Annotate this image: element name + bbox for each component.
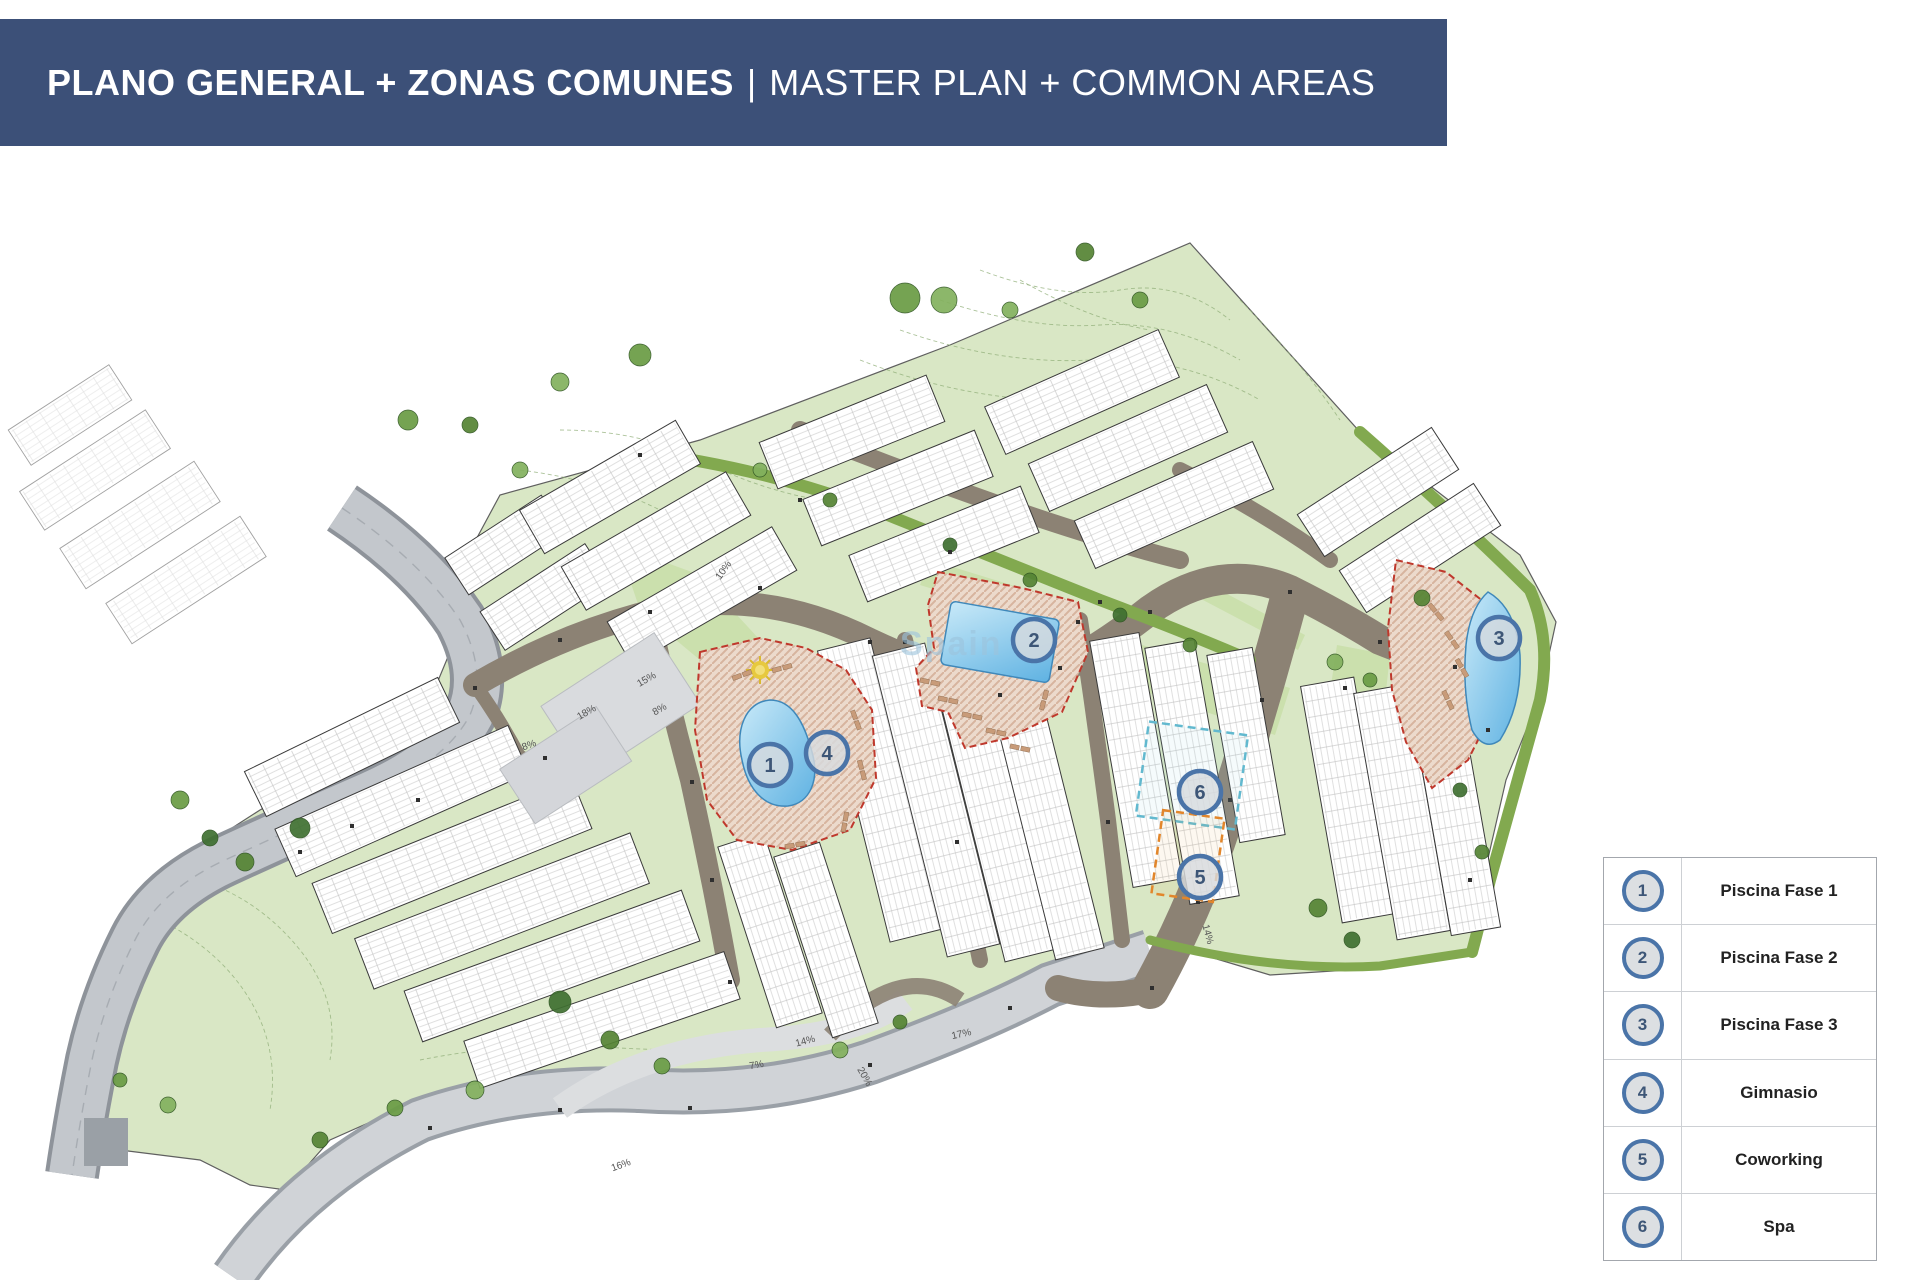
legend-row-piscina-fase-3: 3 Piscina Fase 3	[1604, 992, 1876, 1059]
street-light-dot	[688, 1106, 692, 1110]
street-light-dot	[1148, 610, 1152, 614]
tree	[832, 1042, 848, 1058]
legend-label: Coworking	[1682, 1127, 1876, 1193]
tree	[823, 493, 837, 507]
tree	[202, 830, 218, 846]
tree	[113, 1073, 127, 1087]
tree	[1076, 243, 1094, 261]
tree	[1414, 590, 1430, 606]
tree	[462, 417, 478, 433]
legend-label: Gimnasio	[1682, 1060, 1876, 1126]
tree	[1113, 608, 1127, 622]
tree	[398, 410, 418, 430]
legend-number-cell: 6	[1604, 1194, 1682, 1260]
legend-row-gimnasio: 4 Gimnasio	[1604, 1060, 1876, 1127]
street-light-dot	[710, 878, 714, 882]
legend-number-cell: 1	[1604, 858, 1682, 924]
street-light-dot	[1076, 620, 1080, 624]
legend-row-piscina-fase-2: 2 Piscina Fase 2	[1604, 925, 1876, 992]
legend-number-cell: 3	[1604, 992, 1682, 1058]
tree	[943, 538, 957, 552]
legend-label: Piscina Fase 1	[1682, 858, 1876, 924]
marker-piscina-fase-1: 1	[749, 744, 791, 786]
tree	[890, 283, 920, 313]
tree	[1344, 932, 1360, 948]
legend-number-cell: 2	[1604, 925, 1682, 991]
tree	[1002, 302, 1018, 318]
street-light-dot	[798, 498, 802, 502]
street-light-dot	[948, 550, 952, 554]
tree	[236, 853, 254, 871]
legend-row-spa: 6 Spa	[1604, 1194, 1876, 1260]
svg-text:3: 3	[1493, 628, 1504, 650]
legend-table: 1 Piscina Fase 1 2 Piscina Fase 2 3 Pisc…	[1603, 857, 1877, 1261]
legend-label: Piscina Fase 3	[1682, 992, 1876, 1058]
legend-row-coworking: 5 Coworking	[1604, 1127, 1876, 1194]
tree	[1309, 899, 1327, 917]
street-light-dot	[1058, 666, 1062, 670]
street-light-dot	[648, 610, 652, 614]
legend-circle-2: 2	[1622, 937, 1664, 979]
street-light-dot	[416, 798, 420, 802]
svg-text:1: 1	[764, 755, 775, 777]
svg-text:6: 6	[1194, 782, 1205, 804]
marker-gimnasio: 4	[806, 732, 848, 774]
street-light-dot	[690, 780, 694, 784]
street-light-dot	[1150, 986, 1154, 990]
tree	[171, 791, 189, 809]
legend-label: Spa	[1682, 1194, 1876, 1260]
tree	[1023, 573, 1037, 587]
tree	[312, 1132, 328, 1148]
street-light-dot	[998, 693, 1002, 697]
page-title-en: MASTER PLAN + COMMON AREAS	[769, 62, 1375, 104]
tree	[931, 287, 957, 313]
street-light-dot	[558, 1108, 562, 1112]
marker-piscina-fase-2: 2	[1013, 619, 1055, 661]
title-separator: |	[747, 62, 756, 104]
street-light-dot	[1288, 590, 1292, 594]
street-light-dot	[1468, 878, 1472, 882]
tree	[290, 818, 310, 838]
svg-text:2: 2	[1028, 630, 1039, 652]
tree	[893, 1015, 907, 1029]
legend-row-piscina-fase-1: 1 Piscina Fase 1	[1604, 858, 1876, 925]
tree	[1363, 673, 1377, 687]
tree	[1132, 292, 1148, 308]
tree	[387, 1100, 403, 1116]
tree	[160, 1097, 176, 1113]
legend-number-cell: 5	[1604, 1127, 1682, 1193]
street-light-dot	[1008, 1006, 1012, 1010]
legend-circle-4: 4	[1622, 1072, 1664, 1114]
tree	[1183, 638, 1197, 652]
watermark: Spain	[900, 625, 1003, 663]
tree	[753, 463, 767, 477]
legend-label: Piscina Fase 2	[1682, 925, 1876, 991]
page: 10%15%8%18%8%14%7%17%20%14%16% Spain 1 2…	[0, 0, 1920, 1280]
street-light-dot	[473, 686, 477, 690]
street-light-dot	[1343, 686, 1347, 690]
street-light-dot	[1378, 640, 1382, 644]
street-light-dot	[868, 640, 872, 644]
street-light-dot	[350, 824, 354, 828]
tree	[654, 1058, 670, 1074]
svg-text:4: 4	[821, 743, 833, 765]
tree	[1327, 654, 1343, 670]
tree	[512, 462, 528, 478]
marker-piscina-fase-3: 3	[1478, 617, 1520, 659]
street-light-dot	[728, 980, 732, 984]
tree	[629, 344, 651, 366]
legend-circle-6: 6	[1622, 1206, 1664, 1248]
marker-coworking: 5	[1179, 856, 1221, 898]
street-light-dot	[1106, 820, 1110, 824]
street-light-dot	[1486, 728, 1490, 732]
legend-circle-5: 5	[1622, 1139, 1664, 1181]
street-light-dot	[1453, 665, 1457, 669]
tree	[551, 373, 569, 391]
street-light-dot	[543, 756, 547, 760]
tree	[1453, 783, 1467, 797]
street-light-dot	[868, 1063, 872, 1067]
context-buildings	[8, 365, 266, 644]
street-light-dot	[1260, 698, 1264, 702]
tree	[466, 1081, 484, 1099]
street-light-dot	[298, 850, 302, 854]
svg-text:5: 5	[1194, 867, 1205, 889]
street-light-dot	[955, 840, 959, 844]
street-light-dot	[1098, 600, 1102, 604]
legend-number-cell: 4	[1604, 1060, 1682, 1126]
marker-spa: 6	[1179, 771, 1221, 813]
road-spur	[84, 1118, 128, 1166]
tree	[549, 991, 571, 1013]
legend-circle-1: 1	[1622, 870, 1664, 912]
slope-label: 16%	[610, 1157, 633, 1174]
page-title-es: PLANO GENERAL + ZONAS COMUNES	[47, 62, 734, 104]
legend-circle-3: 3	[1622, 1004, 1664, 1046]
street-light-dot	[758, 586, 762, 590]
street-light-dot	[558, 638, 562, 642]
street-light-dot	[638, 453, 642, 457]
title-bar: PLANO GENERAL + ZONAS COMUNES | MASTER P…	[0, 19, 1447, 146]
tree	[601, 1031, 619, 1049]
street-light-dot	[428, 1126, 432, 1130]
tree	[1475, 845, 1489, 859]
